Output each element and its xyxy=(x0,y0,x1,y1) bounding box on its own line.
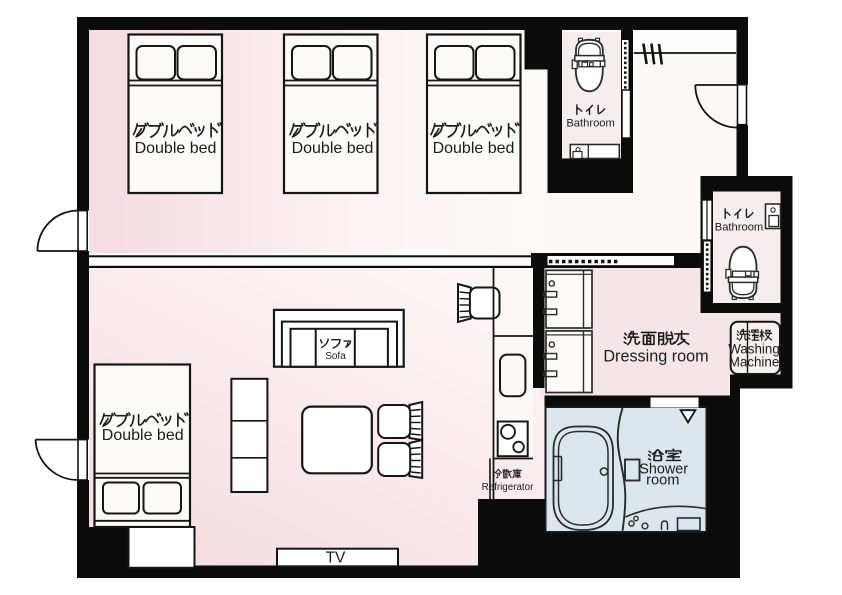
svg-text:room: room xyxy=(646,473,679,489)
svg-text:Bathroom: Bathroom xyxy=(715,222,764,234)
svg-text:Bathroom: Bathroom xyxy=(566,117,615,129)
svg-text:Dressing room: Dressing room xyxy=(603,348,708,366)
svg-text:Sofa: Sofa xyxy=(325,351,346,362)
svg-text:TV: TV xyxy=(326,549,346,566)
svg-text:Double bed: Double bed xyxy=(102,427,184,444)
svg-text:Refrigerator: Refrigerator xyxy=(482,482,534,493)
svg-text:Double bed: Double bed xyxy=(135,140,217,157)
svg-text:Machine: Machine xyxy=(729,355,780,370)
svg-text:Double bed: Double bed xyxy=(292,140,374,157)
svg-text:Double bed: Double bed xyxy=(433,140,515,157)
